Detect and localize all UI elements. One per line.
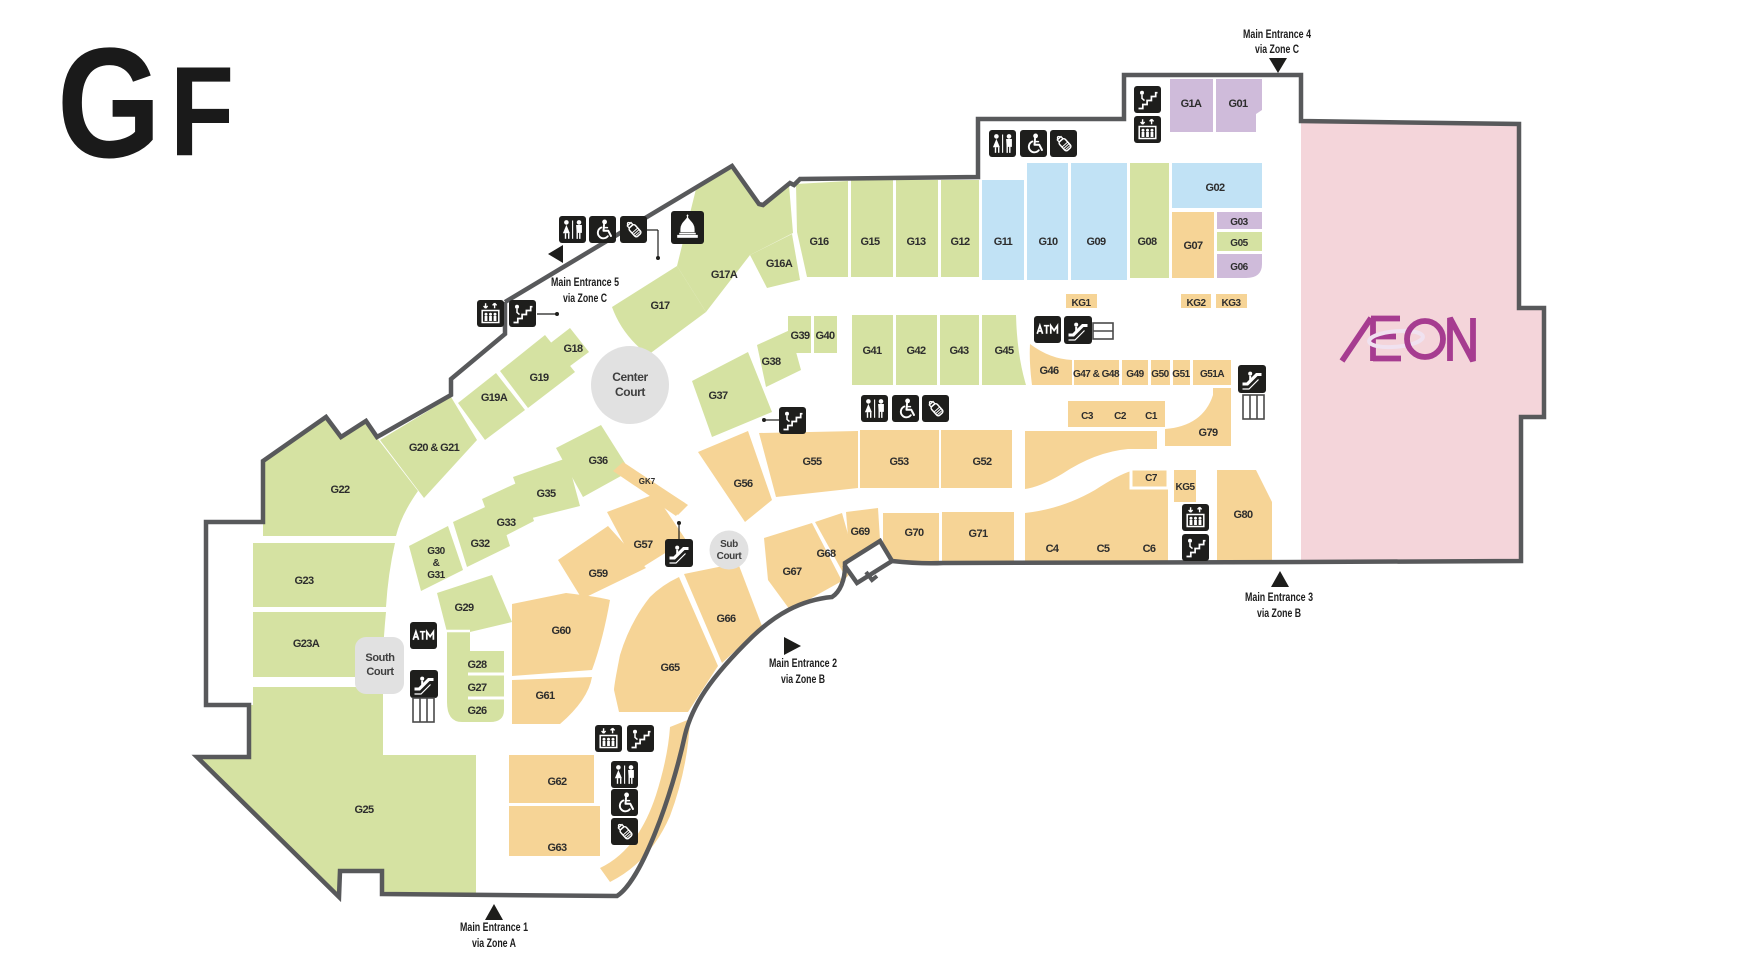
svg-text:G40: G40 bbox=[816, 330, 835, 342]
svg-text:G63: G63 bbox=[548, 842, 567, 854]
svg-text:G80: G80 bbox=[1234, 509, 1253, 521]
svg-text:via Zone C: via Zone C bbox=[1255, 42, 1299, 56]
svg-text:C6: C6 bbox=[1143, 543, 1156, 555]
svg-text:G46: G46 bbox=[1040, 365, 1059, 377]
svg-text:G47 & G48: G47 & G48 bbox=[1073, 369, 1120, 380]
svg-text:C5: C5 bbox=[1097, 543, 1110, 555]
svg-text:C1: C1 bbox=[1145, 411, 1158, 422]
svg-text:via Zone B: via Zone B bbox=[1257, 606, 1301, 620]
svg-text:G50: G50 bbox=[1151, 369, 1169, 380]
svg-text:G49: G49 bbox=[1126, 369, 1144, 380]
svg-text:G31: G31 bbox=[427, 570, 445, 581]
svg-text:via Zone A: via Zone A bbox=[472, 936, 516, 950]
svg-text:G: G bbox=[57, 16, 161, 191]
svg-text:G45: G45 bbox=[995, 345, 1014, 357]
svg-text:G20 & G21: G20 & G21 bbox=[409, 442, 460, 454]
svg-text:G36: G36 bbox=[589, 455, 608, 467]
svg-text:G59: G59 bbox=[589, 568, 608, 580]
svg-text:C7: C7 bbox=[1145, 473, 1158, 484]
svg-text:G17A: G17A bbox=[711, 269, 738, 281]
svg-text:F: F bbox=[170, 40, 234, 182]
svg-text:G68: G68 bbox=[817, 548, 836, 560]
svg-text:via Zone B: via Zone B bbox=[781, 672, 825, 686]
svg-text:G08: G08 bbox=[1138, 236, 1157, 248]
svg-text:G1A: G1A bbox=[1181, 98, 1202, 110]
svg-text:G60: G60 bbox=[552, 625, 571, 637]
svg-text:G17: G17 bbox=[651, 300, 670, 312]
svg-text:G16: G16 bbox=[810, 236, 829, 248]
svg-text:G06: G06 bbox=[1230, 262, 1248, 273]
svg-text:G79: G79 bbox=[1199, 427, 1218, 439]
svg-text:G32: G32 bbox=[471, 538, 490, 550]
svg-text:G01: G01 bbox=[1229, 98, 1248, 110]
svg-text:G61: G61 bbox=[536, 690, 555, 702]
svg-text:G12: G12 bbox=[951, 236, 970, 248]
svg-text:Center: Center bbox=[612, 370, 648, 384]
svg-text:KG5: KG5 bbox=[1175, 482, 1195, 493]
svg-text:G37: G37 bbox=[709, 390, 728, 402]
svg-text:C4: C4 bbox=[1046, 543, 1060, 555]
svg-text:G51: G51 bbox=[1172, 369, 1190, 380]
svg-text:G13: G13 bbox=[907, 236, 926, 248]
svg-text:G67: G67 bbox=[783, 566, 802, 578]
svg-text:G23A: G23A bbox=[293, 638, 320, 650]
svg-text:G65: G65 bbox=[661, 662, 680, 674]
svg-text:G29: G29 bbox=[455, 602, 474, 614]
svg-text:G28: G28 bbox=[468, 659, 487, 671]
svg-text:Court: Court bbox=[366, 666, 394, 678]
svg-text:G25: G25 bbox=[355, 804, 374, 816]
svg-text:Main Entrance 4: Main Entrance 4 bbox=[1243, 27, 1311, 41]
svg-text:G11: G11 bbox=[994, 236, 1013, 248]
svg-text:G05: G05 bbox=[1230, 238, 1248, 249]
svg-text:&: & bbox=[433, 558, 440, 569]
svg-text:G70: G70 bbox=[905, 527, 924, 539]
svg-text:G57: G57 bbox=[634, 539, 653, 551]
svg-text:C3: C3 bbox=[1081, 411, 1094, 422]
svg-text:G55: G55 bbox=[803, 456, 822, 468]
svg-text:G35: G35 bbox=[537, 488, 556, 500]
svg-text:G30: G30 bbox=[427, 546, 445, 557]
svg-text:Main Entrance 2: Main Entrance 2 bbox=[769, 656, 837, 670]
svg-text:KG1: KG1 bbox=[1071, 298, 1091, 309]
svg-text:Court: Court bbox=[615, 385, 645, 399]
svg-text:Main Entrance 5: Main Entrance 5 bbox=[551, 275, 619, 289]
svg-text:G52: G52 bbox=[973, 456, 992, 468]
svg-text:G07: G07 bbox=[1184, 240, 1203, 252]
svg-text:Main Entrance 1: Main Entrance 1 bbox=[460, 920, 528, 934]
svg-text:G16A: G16A bbox=[766, 258, 793, 270]
svg-text:G53: G53 bbox=[890, 456, 909, 468]
svg-text:G09: G09 bbox=[1087, 236, 1106, 248]
svg-text:G51A: G51A bbox=[1200, 369, 1224, 380]
svg-text:G19A: G19A bbox=[481, 392, 508, 404]
svg-text:Court: Court bbox=[717, 551, 743, 562]
svg-text:G19: G19 bbox=[530, 372, 549, 384]
svg-text:G69: G69 bbox=[851, 526, 870, 538]
svg-text:G42: G42 bbox=[907, 345, 926, 357]
svg-text:G15: G15 bbox=[861, 236, 880, 248]
svg-text:Sub: Sub bbox=[720, 539, 738, 550]
svg-text:G66: G66 bbox=[717, 613, 736, 625]
svg-text:C2: C2 bbox=[1114, 411, 1127, 422]
svg-text:G10: G10 bbox=[1039, 236, 1058, 248]
svg-text:KG3: KG3 bbox=[1221, 298, 1241, 309]
svg-text:G33: G33 bbox=[497, 517, 516, 529]
svg-text:G22: G22 bbox=[331, 484, 350, 496]
svg-text:via Zone C: via Zone C bbox=[563, 291, 607, 305]
svg-text:Main Entrance 3: Main Entrance 3 bbox=[1245, 590, 1313, 604]
svg-text:G71: G71 bbox=[969, 528, 988, 540]
svg-text:G38: G38 bbox=[762, 356, 781, 368]
svg-text:G03: G03 bbox=[1230, 217, 1248, 228]
svg-text:G43: G43 bbox=[950, 345, 969, 357]
svg-text:GK7: GK7 bbox=[639, 477, 656, 486]
svg-text:G62: G62 bbox=[548, 776, 567, 788]
svg-text:KG2: KG2 bbox=[1186, 298, 1206, 309]
svg-text:G39: G39 bbox=[791, 330, 810, 342]
svg-text:G02: G02 bbox=[1206, 182, 1225, 194]
svg-text:G26: G26 bbox=[468, 705, 487, 717]
svg-text:G41: G41 bbox=[863, 345, 882, 357]
svg-text:G18: G18 bbox=[564, 343, 583, 355]
svg-text:G56: G56 bbox=[734, 478, 753, 490]
svg-text:G23: G23 bbox=[295, 575, 314, 587]
svg-text:South: South bbox=[365, 652, 395, 664]
svg-text:G27: G27 bbox=[468, 682, 487, 694]
